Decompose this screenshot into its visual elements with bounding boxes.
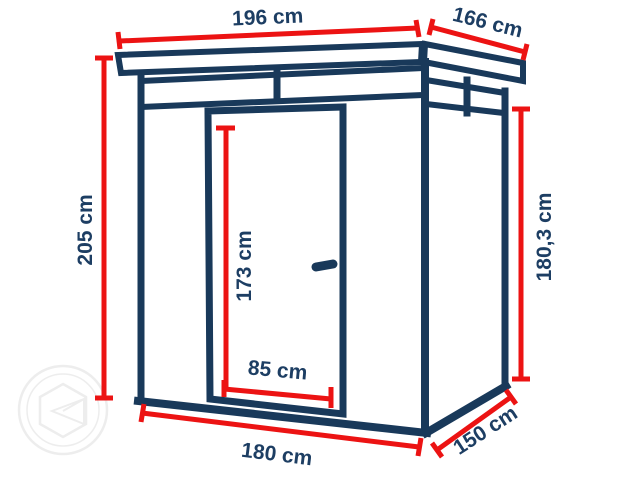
label-side-height: 180,3 cm [533,193,556,282]
shed-drawing [118,44,523,433]
diagram-canvas: 196 cm 166 cm 205 cm 180,3 cm 173 cm 85 … [0,0,639,479]
label-door-height: 173 cm [233,230,256,301]
door-handle-icon [316,264,333,267]
vent-rail-bottom-front [141,95,423,107]
watermark-logo [19,366,107,454]
shed-dimension-drawing: 196 cm 166 cm 205 cm 180,3 cm 173 cm 85 … [0,0,639,479]
dimension-line-total-height [95,58,113,398]
label-roof-width: 196 cm [232,4,304,30]
label-door-width: 85 cm [247,356,308,384]
label-base-width: 180 cm [240,439,314,471]
watermark-emblem [52,399,84,424]
dimension-line-side-height [512,109,530,379]
label-total-height: 205 cm [74,194,97,265]
